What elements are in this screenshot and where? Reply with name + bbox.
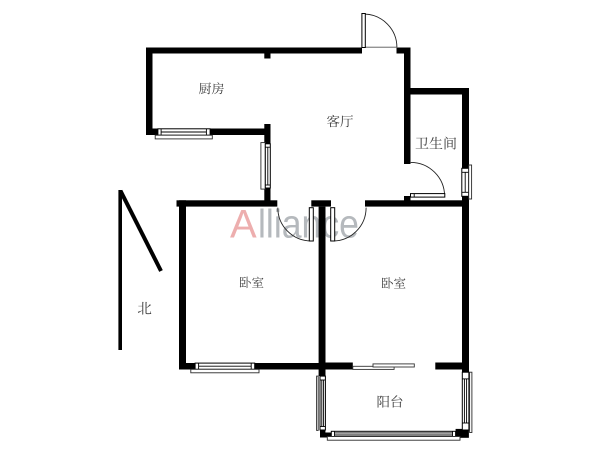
svg-text:lliance: lliance [258,202,359,246]
svg-text:A: A [230,202,257,246]
